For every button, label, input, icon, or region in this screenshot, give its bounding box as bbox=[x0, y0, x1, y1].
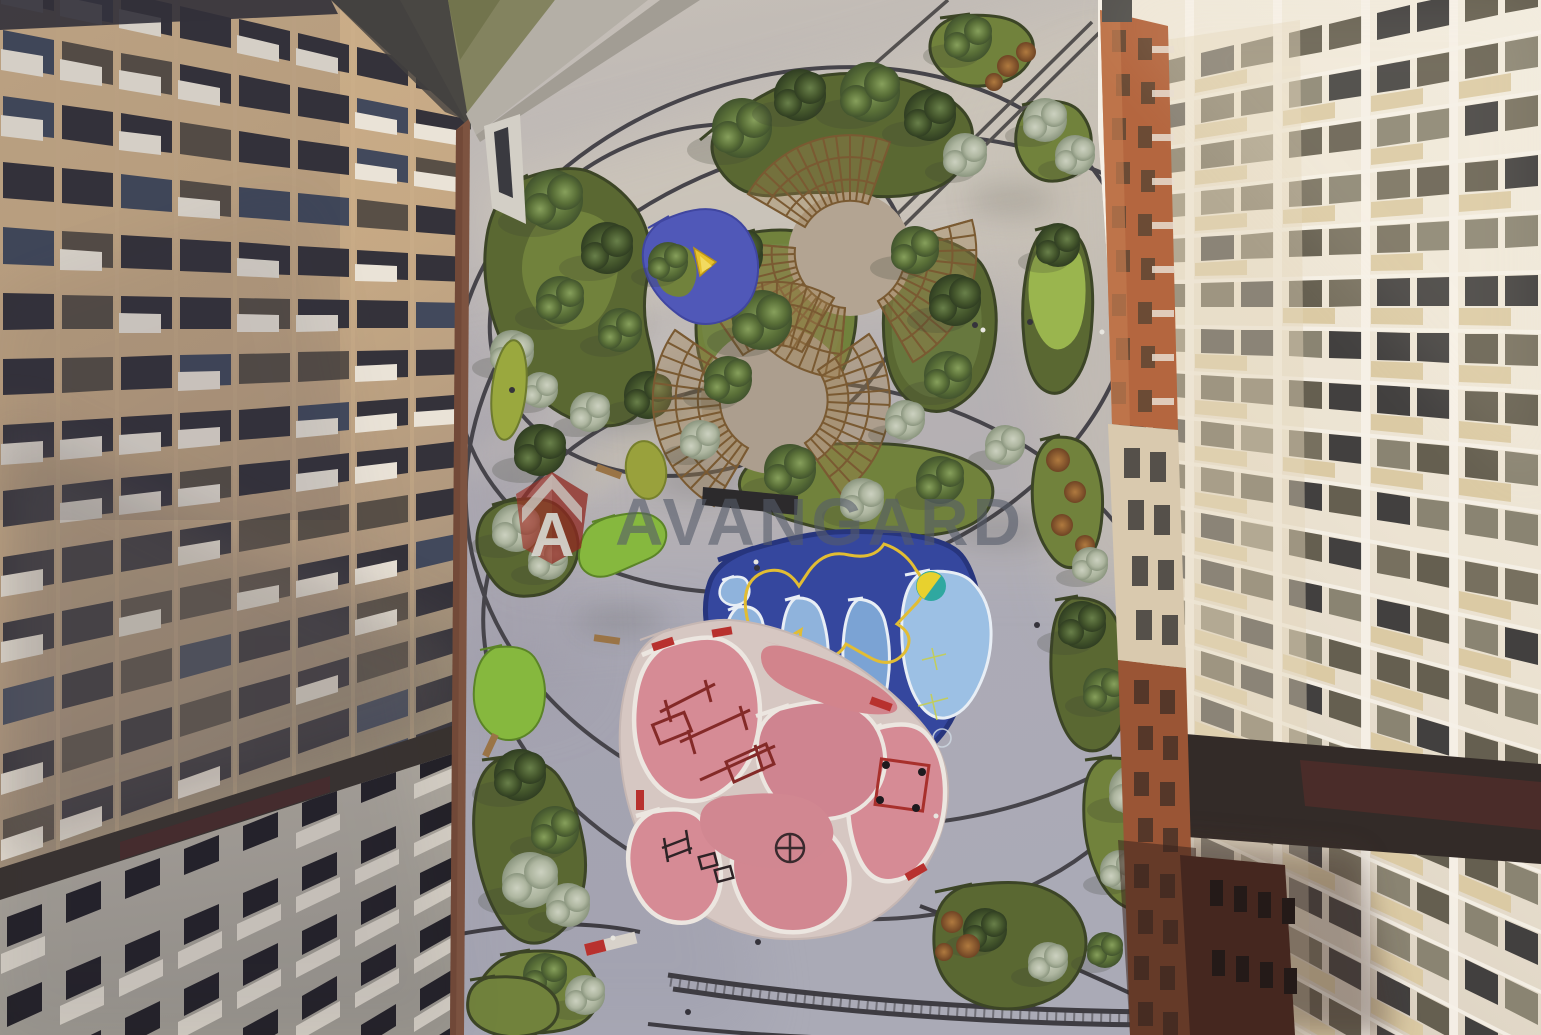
svg-text:AVANGARD: AVANGARD bbox=[615, 485, 1023, 560]
svg-text:A: A bbox=[530, 501, 575, 570]
